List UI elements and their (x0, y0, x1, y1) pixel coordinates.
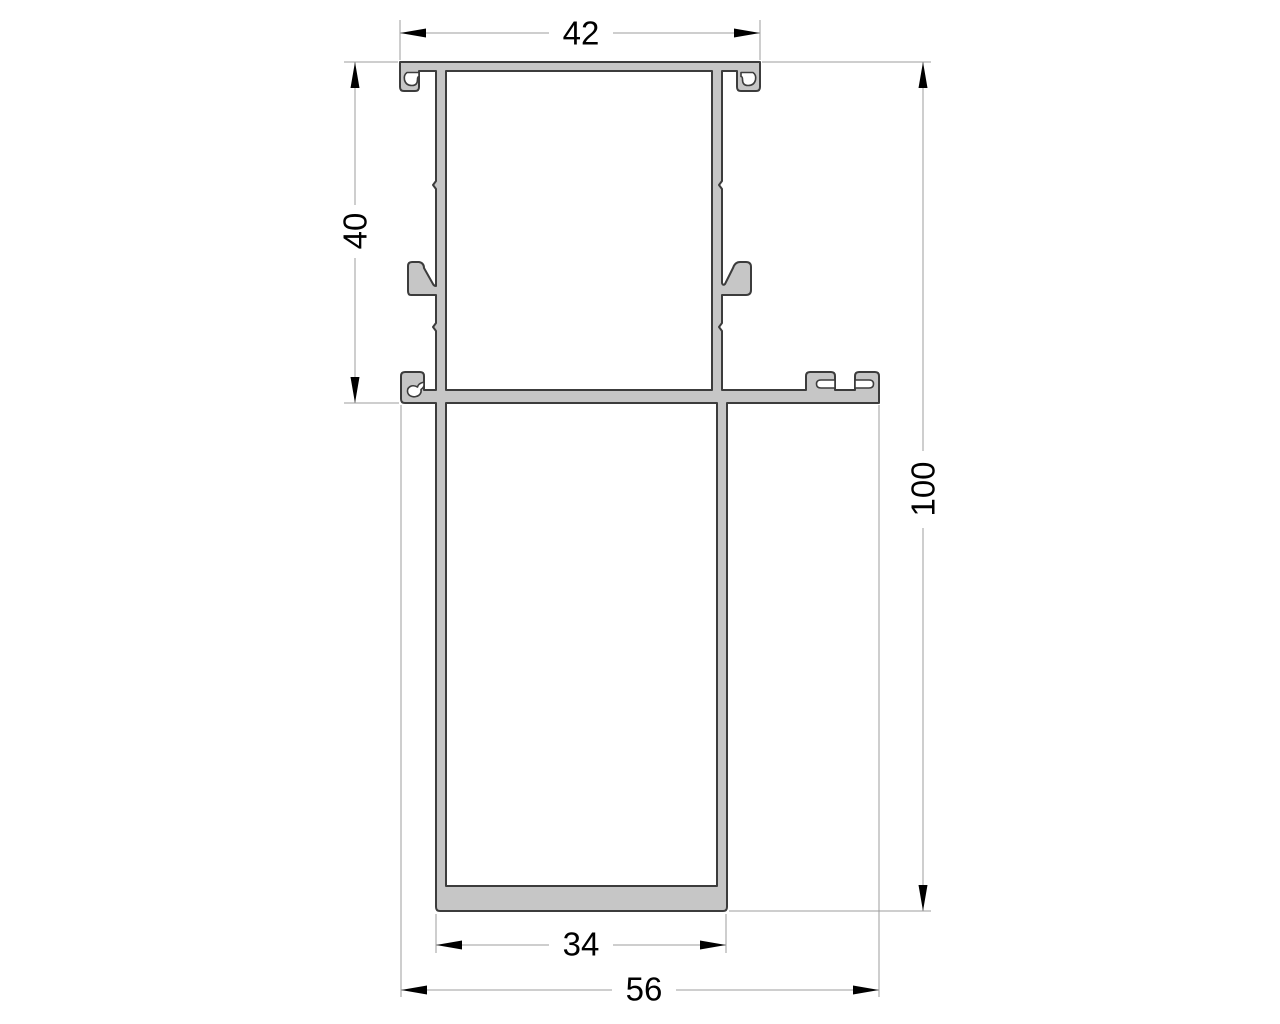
arrowhead-icon (919, 62, 928, 88)
arrowhead-icon (351, 377, 360, 403)
arrowhead-icon (919, 885, 928, 911)
dimension-label: 40 (337, 213, 374, 250)
dimension-label: 56 (626, 971, 663, 1008)
dimension-overall-height: 100 (729, 62, 942, 911)
clip-slot-right-tab (855, 380, 874, 388)
profile-body (400, 62, 879, 911)
dimension-label: 34 (563, 926, 600, 963)
cad-drawing: 42 40 100 (0, 0, 1280, 1024)
arrowhead-icon (436, 941, 462, 950)
arrowhead-icon (401, 986, 427, 995)
arrowhead-icon (853, 986, 879, 995)
dimension-overall-width: 56 (401, 405, 879, 1008)
gasket-groove-cap-right (741, 73, 756, 86)
dimension-label: 42 (563, 15, 600, 52)
dimension-bottom-width: 34 (436, 914, 726, 963)
drawing-canvas: 42 40 100 (0, 0, 1280, 1024)
arrowhead-icon (700, 941, 726, 950)
dimension-label: 100 (905, 461, 942, 516)
clip-slot-left-tab (817, 380, 836, 388)
arrowhead-icon (400, 29, 426, 38)
dimension-upper-section-height: 40 (337, 62, 400, 403)
arrowhead-icon (734, 29, 760, 38)
arrowhead-icon (351, 62, 360, 88)
gasket-groove-cap-left (404, 73, 419, 86)
profile (400, 62, 879, 911)
dimension-top-width: 42 (400, 15, 760, 61)
